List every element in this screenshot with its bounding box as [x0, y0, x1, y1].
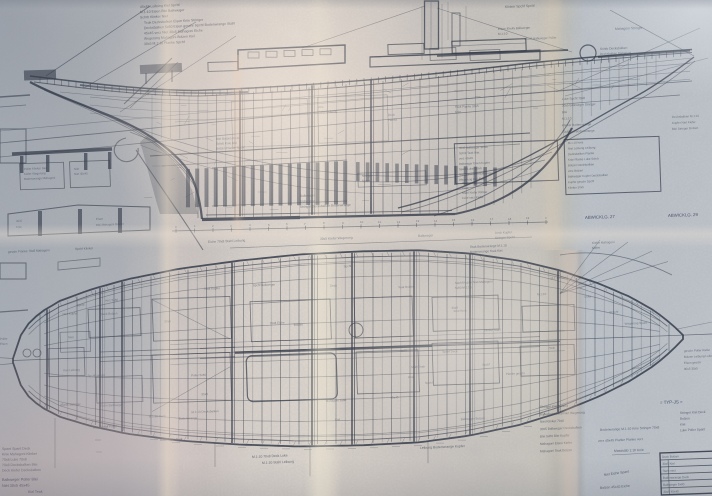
svg-text:70x8 Decksbalken Blei: 70x8 Decksbalken Blei	[2, 463, 38, 468]
svg-text:Niet 45x45: Niet 45x45	[74, 171, 88, 176]
svg-text:M.1:10: M.1:10	[537, 292, 547, 296]
svg-text:Balkweger: Balkweger	[300, 193, 316, 198]
svg-text:Knie: Knie	[16, 225, 22, 229]
svg-text:geschr: geschr	[609, 310, 618, 314]
svg-text:Klinker Stahl: Klinker Stahl	[484, 328, 501, 333]
svg-text:verz Bolzen: verz Bolzen	[568, 168, 584, 173]
svg-text:30x5 30x5: 30x5 30x5	[684, 366, 698, 371]
svg-text:Balkweger 5x60: Balkweger 5x60	[663, 482, 685, 487]
svg-text:Wegerung: Wegerung	[462, 180, 476, 185]
svg-text:Deck Kiefer Decksbalken: Deck Kiefer Decksbalken	[2, 468, 41, 473]
svg-text:verz 45x45: verz 45x45	[459, 156, 474, 161]
svg-text:11: 11	[378, 220, 381, 224]
svg-text:M.1:10 Deck: M.1:10 Deck	[149, 414, 166, 419]
svg-text:Spchf geschr: Spchf geschr	[88, 373, 106, 378]
svg-text:12: 12	[397, 220, 401, 224]
svg-text:Knie Knie: Knie Knie	[454, 309, 467, 314]
svg-text:17: 17	[490, 217, 494, 221]
svg-text:Eisen: Eisen	[0, 342, 8, 346]
svg-text:Niet 30x5 45x45: Niet 30x5 45x45	[2, 484, 30, 488]
svg-text:30x5: 30x5	[201, 392, 208, 396]
svg-text:18: 18	[508, 217, 512, 221]
svg-text:Spchf Deck: Spchf Deck	[442, 349, 458, 354]
svg-text:16: 16	[471, 218, 475, 222]
svg-text:13: 13	[416, 219, 420, 223]
svg-text:M.1:10: M.1:10	[498, 32, 508, 36]
svg-text:Kiefer: Kiefer	[592, 246, 600, 250]
svg-text:70x8 Kupfer: 70x8 Kupfer	[204, 286, 220, 291]
svg-text:45x45: 45x45	[390, 395, 399, 399]
svg-text:Balkweger Poller Blei: Balkweger Poller Blei	[2, 477, 38, 482]
svg-text:30x5: 30x5	[16, 219, 23, 223]
svg-text:Knie: Knie	[455, 110, 462, 114]
svg-text:Spchf: Spchf	[77, 303, 85, 307]
svg-text:10: 10	[360, 220, 364, 224]
svg-text:Kiel Leibung: Kiel Leibung	[63, 368, 80, 373]
svg-text:Spchf: Spchf	[482, 362, 490, 366]
svg-text:Eisen: Eisen	[96, 217, 104, 221]
svg-text:M.1:10: M.1:10	[562, 116, 572, 120]
svg-text:15: 15	[452, 218, 456, 222]
svg-text:Bolzen: Bolzen	[294, 322, 304, 326]
svg-text:verz Kupfer: verz Kupfer	[62, 311, 78, 316]
svg-text:Blei: Blei	[562, 110, 568, 114]
svg-text:Spant: Spant	[362, 179, 370, 183]
svg-text:Kiel: Kiel	[335, 417, 341, 421]
svg-text:Deck Bolzen: Deck Bolzen	[101, 311, 118, 316]
svg-text:Niet: Niet	[68, 335, 74, 339]
svg-text:Deck: Deck	[388, 113, 396, 117]
svg-text:ABWICKLG. 27: ABWICKLG. 27	[585, 214, 616, 220]
svg-text:30x5: 30x5	[164, 319, 171, 323]
svg-text:70x8 Luke 70x8: 70x8 Luke 70x8	[2, 457, 27, 461]
svg-text:Bodenwrange: Bodenwrange	[179, 416, 198, 421]
svg-text:Stringer: Stringer	[362, 174, 373, 178]
svg-text:Balkweger: Balkweger	[418, 233, 434, 238]
svg-text:Deck Bolzen: Deck Bolzen	[662, 454, 679, 459]
svg-text:5x60 M.1:10: 5x60 M.1:10	[455, 285, 472, 290]
svg-text:Planke: Planke	[388, 118, 398, 122]
svg-text:geschr: geschr	[632, 366, 641, 370]
svg-text:5x60: 5x60	[400, 348, 407, 352]
svg-text:Eisen geschr: Eisen geschr	[684, 360, 702, 365]
svg-text:70x8 Eiche: 70x8 Eiche	[270, 321, 285, 326]
svg-text:Knie: Knie	[408, 375, 415, 379]
svg-text:verz: verz	[318, 105, 324, 109]
svg-text:Klinker 30x5: Klinker 30x5	[568, 185, 584, 190]
svg-text:Teak Bolzen: Teak Bolzen	[398, 285, 415, 290]
svg-text:Spchf: Spchf	[344, 264, 352, 268]
svg-text:verz 5x60: verz 5x60	[105, 298, 118, 303]
svg-text:Knie Mahagoni Klinker: Knie Mahagoni Klinker	[2, 452, 38, 457]
svg-text:M.1:10 Stahl: M.1:10 Stahl	[551, 276, 568, 281]
svg-text:Spchf: Spchf	[425, 381, 433, 385]
svg-text:Deck Kupfer: Deck Kupfer	[495, 230, 512, 235]
svg-text:Poller: Poller	[0, 337, 8, 341]
svg-text:Luke: Luke	[462, 186, 469, 190]
svg-text:Kiel Teak: Kiel Teak	[28, 490, 43, 494]
svg-text:Luke: Luke	[585, 294, 592, 298]
svg-text:Bolzen: Bolzen	[680, 416, 690, 420]
svg-text:30x5 45x45: 30x5 45x45	[663, 489, 679, 494]
svg-text:70x8: 70x8	[548, 346, 555, 350]
svg-text:Spchf Klinker: Spchf Klinker	[75, 246, 93, 251]
svg-text:Stahl Teak: Stahl Teak	[411, 364, 426, 369]
svg-text:Stahl verz: Stahl verz	[662, 468, 676, 472]
svg-text:Poller 5x60: Poller 5x60	[191, 373, 207, 378]
svg-text:Deck: Deck	[330, 283, 338, 287]
svg-text:Niet: Niet	[74, 167, 80, 171]
svg-text:= TYP-JS =: = TYP-JS =	[660, 399, 683, 405]
svg-text:ABWICKLG. 29: ABWICKLG. 29	[668, 212, 699, 218]
svg-text:Spchf Poller: Spchf Poller	[100, 424, 118, 429]
svg-text:Eiche verz: Eiche verz	[300, 199, 315, 204]
svg-text:19: 19	[526, 216, 530, 220]
svg-text:Planke geschr: Planke geschr	[506, 371, 525, 376]
svg-text:Poller Leibung: Poller Leibung	[318, 109, 338, 114]
svg-text:M.1:10 Knie: M.1:10 Knie	[568, 140, 584, 145]
svg-text:Spant Spant Deck: Spant Spant Deck	[2, 447, 31, 451]
svg-text:30x5 Kiel: 30x5 Kiel	[662, 461, 675, 465]
svg-text:Kiel: Kiel	[680, 422, 686, 426]
svg-text:14: 14	[434, 219, 438, 223]
